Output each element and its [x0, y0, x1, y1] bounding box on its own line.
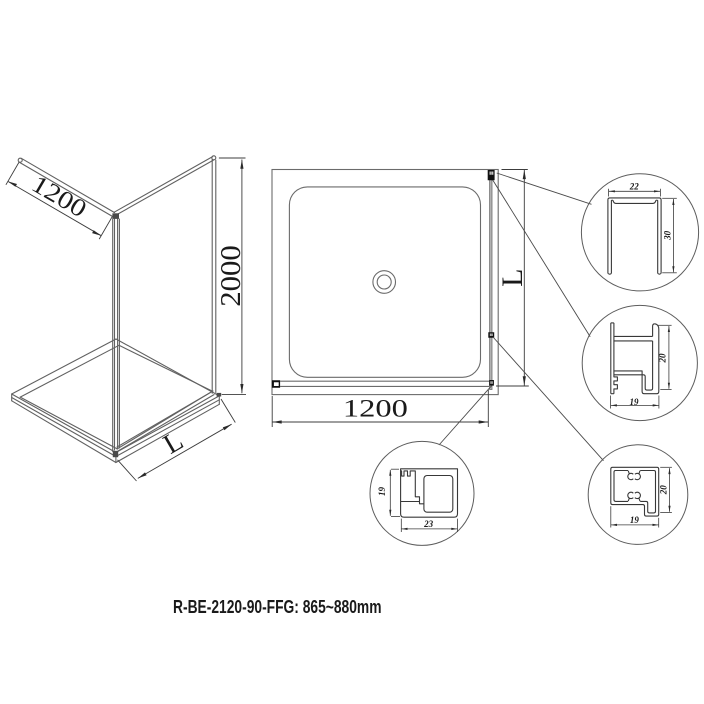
svg-text:19: 19: [630, 515, 640, 525]
svg-text:23: 23: [423, 519, 434, 529]
svg-text:R-BE-2120-90-FFG: 865~880mm: R-BE-2120-90-FFG: 865~880mm: [173, 597, 382, 617]
svg-text:20: 20: [657, 353, 667, 364]
svg-text:19: 19: [377, 487, 387, 497]
svg-text:1200: 1200: [343, 395, 408, 423]
svg-text:22: 22: [629, 182, 640, 192]
svg-text:2000: 2000: [216, 245, 246, 307]
svg-text:20: 20: [658, 485, 668, 496]
svg-text:19: 19: [630, 397, 640, 407]
svg-text:30: 30: [663, 230, 673, 241]
svg-text:L: L: [496, 269, 529, 287]
